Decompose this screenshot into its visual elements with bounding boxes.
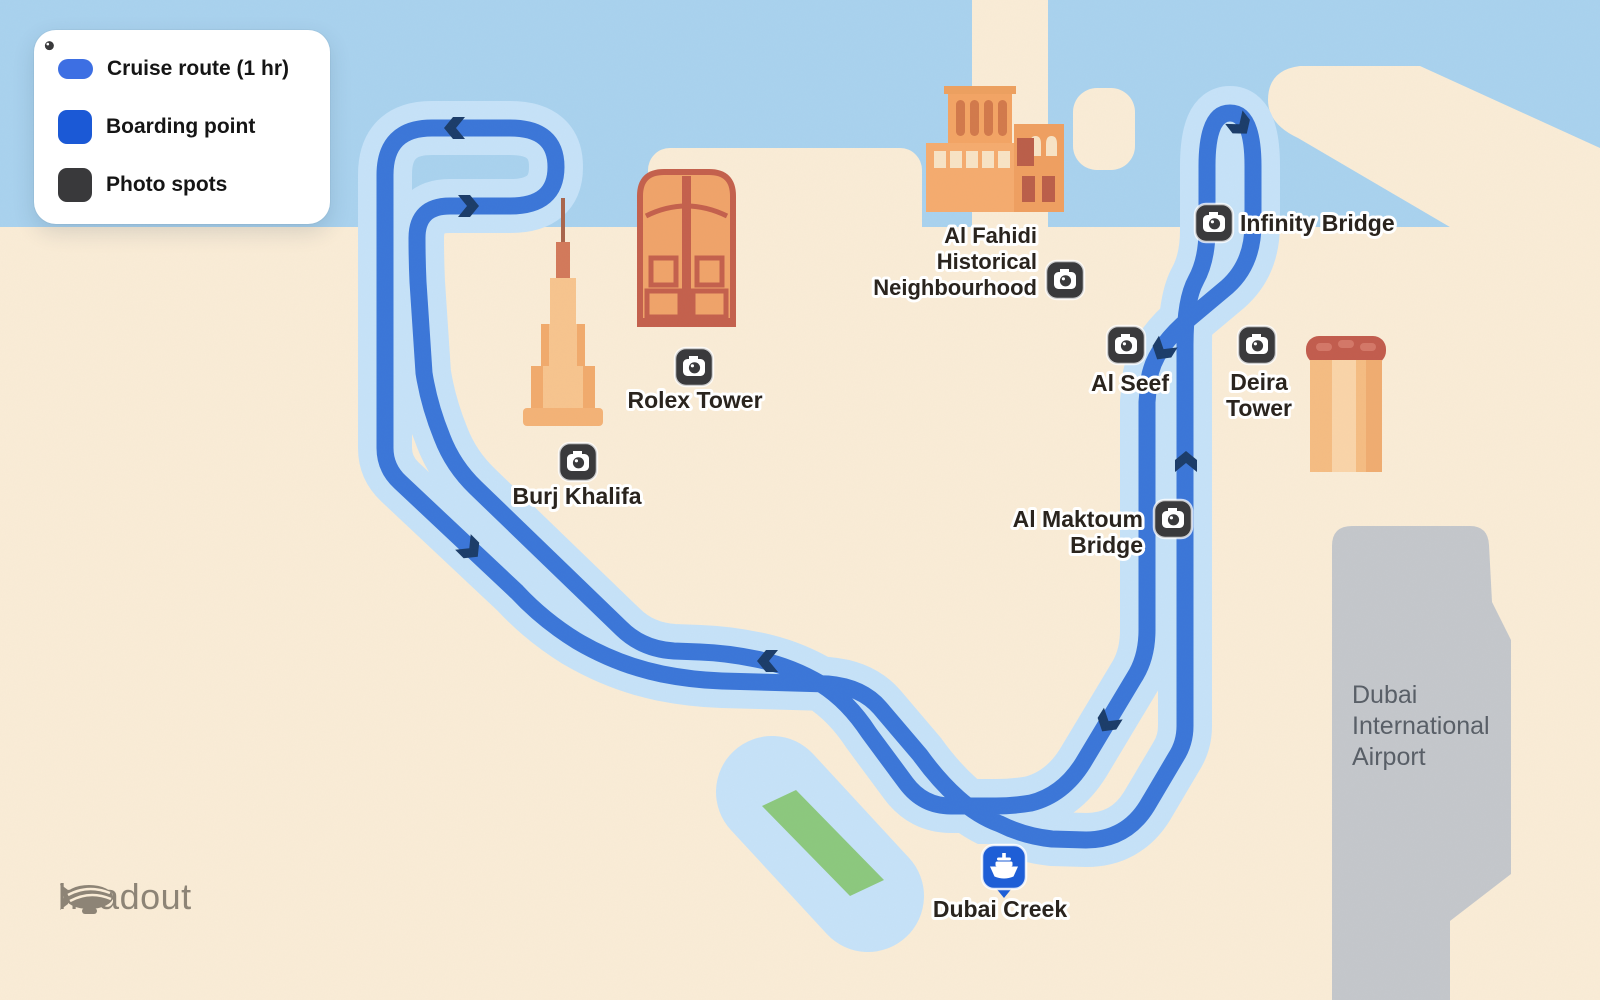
label-rolex-tower: Rolex Tower <box>627 387 762 413</box>
camera-icon <box>1238 326 1276 364</box>
cruise-map: Dubai International Airport <box>0 0 1600 1000</box>
legend-item-photo-spots: Photo spots <box>58 168 306 202</box>
camera-icon <box>1154 500 1192 538</box>
label-al-maktoum-line2: Bridge <box>1070 532 1143 558</box>
legend-label: Boarding point <box>106 115 255 139</box>
blimp-icon <box>58 876 116 920</box>
legend-label: Photo spots <box>106 173 227 197</box>
headout-logo: headout <box>58 876 192 918</box>
camera-icon <box>675 348 713 386</box>
label-al-seef: Al Seef <box>1091 370 1169 396</box>
label-al-fahidi-line2: Historical <box>937 249 1037 274</box>
label-al-fahidi-line3: Neighbourhood <box>873 275 1037 300</box>
camera-icon <box>58 168 92 202</box>
camera-icon <box>1195 204 1233 242</box>
camera-icon <box>1107 326 1145 364</box>
label-al-maktoum-line1: Al Maktoum <box>1013 506 1143 532</box>
boat-icon <box>58 110 92 144</box>
label-al-fahidi-line1: Al Fahidi <box>944 223 1037 248</box>
route-pill-icon <box>58 59 93 79</box>
legend-item-cruise-route: Cruise route (1 hr) <box>58 52 306 86</box>
legend-label: Cruise route (1 hr) <box>107 57 289 81</box>
legend-card: Cruise route (1 hr) Boarding point Photo… <box>34 30 330 224</box>
camera-icon <box>1046 261 1084 299</box>
label-deira-line1: Deira <box>1230 369 1288 395</box>
label-infinity-bridge: Infinity Bridge <box>1240 210 1395 236</box>
label-dubai-creek: Dubai Creek <box>933 896 1067 922</box>
label-burj-khalifa: Burj Khalifa <box>512 483 641 509</box>
legend-item-boarding-point: Boarding point <box>58 110 306 144</box>
camera-icon <box>559 443 597 481</box>
label-deira-line2: Tower <box>1226 395 1292 421</box>
